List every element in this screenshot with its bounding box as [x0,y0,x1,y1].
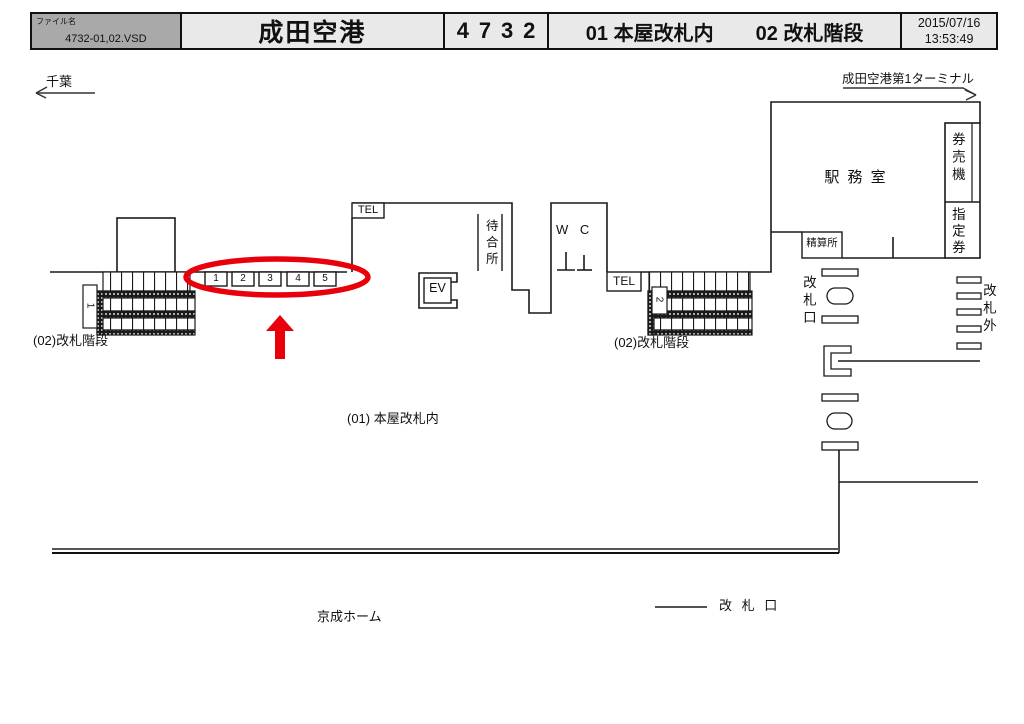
floorplan-canvas [0,0,1024,724]
legend-gate-label: 改 札 口 [719,599,780,613]
highlight-arrow [266,315,294,359]
ticket-gates [822,269,858,450]
direction-chiba: 千葉 [46,75,94,89]
wc-symbols [557,252,592,270]
platform-number-5: 5 [314,273,336,284]
arrow-to-terminal1 [843,88,976,100]
wc-label: W C [556,223,593,237]
reserved-ticket-label: 指定券 [949,207,964,257]
outside-gate-label: 改札外 [980,283,995,336]
tel-left-label: TEL [352,204,384,216]
platform-number-4: 4 [287,273,309,284]
platform-number-3: 3 [259,273,281,284]
ticket-machine-label: 券売機 [949,132,964,185]
platform-number-2: 2 [232,273,254,284]
right-stairs-number: 2 [654,288,665,312]
left-stairs [83,272,195,335]
left-stairs-number: 1 [85,294,96,318]
outside-gate-bars [957,277,981,349]
elevator-label: EV [424,282,451,296]
right-stairs-label: (02)改札階段 [614,336,689,350]
platform-edge-double-line [52,549,839,553]
gate-label: 改札口 [800,275,815,328]
station-floorplan-page: ファイル名 4732-01,02.VSD 成田空港 4732 01 本屋改札内 … [0,0,1024,724]
fare-adjust-label: 精算所 [802,238,842,250]
concourse-label: (01) 本屋改札内 [347,412,439,426]
tel-right-label: TEL [607,275,641,288]
platform-number-1: 1 [205,273,227,284]
left-upper-room [117,218,175,272]
platform-name-label: 京成ホーム [317,610,382,624]
left-stairs-label: (02)改札階段 [33,334,108,348]
waiting-room-label: 待合所 [483,219,497,269]
station-office-label: 駅 務 室 [786,170,926,187]
direction-terminal1: 成田空港第1ターミナル [842,73,974,87]
